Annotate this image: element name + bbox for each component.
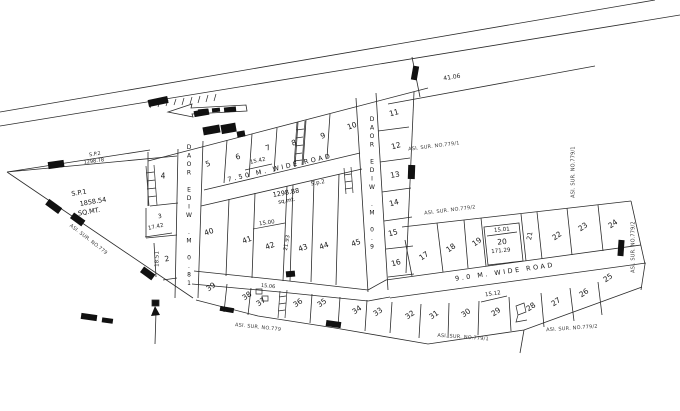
survey-no-779-2-right-vertical: ASI. SUR. NO.779/2 [632,221,637,273]
plot-number-21: 21 [526,231,534,240]
plot-number-20: 20 [497,238,507,246]
plot-number-2: 2 [164,255,170,263]
top-road-lines [0,0,680,126]
hatch-strips [146,121,353,318]
survey-markers [45,66,624,328]
survey-no-779-1-right-vertical: ASI. SUR. NO.779/1 [572,146,577,198]
survey-plat-map: 7.50 M. WIDE ROAD 9.0 M. WIDE ROAD DAOR … [0,0,680,411]
plot-number-13: 13 [390,170,401,179]
road-label-9m-vertical: DAOR EDIW .M 0.9 [369,116,376,252]
north-arrow [151,300,160,344]
road-label-18m-vertical: DAOR EDIW .M 0.81 [186,144,193,289]
boundary-lines [7,57,645,353]
plot-number-3: 3 [158,214,163,221]
map-linework [0,0,680,411]
dimension-plot2-depth: 18.51 [155,251,161,267]
plot-number-4: 4 [161,172,166,180]
